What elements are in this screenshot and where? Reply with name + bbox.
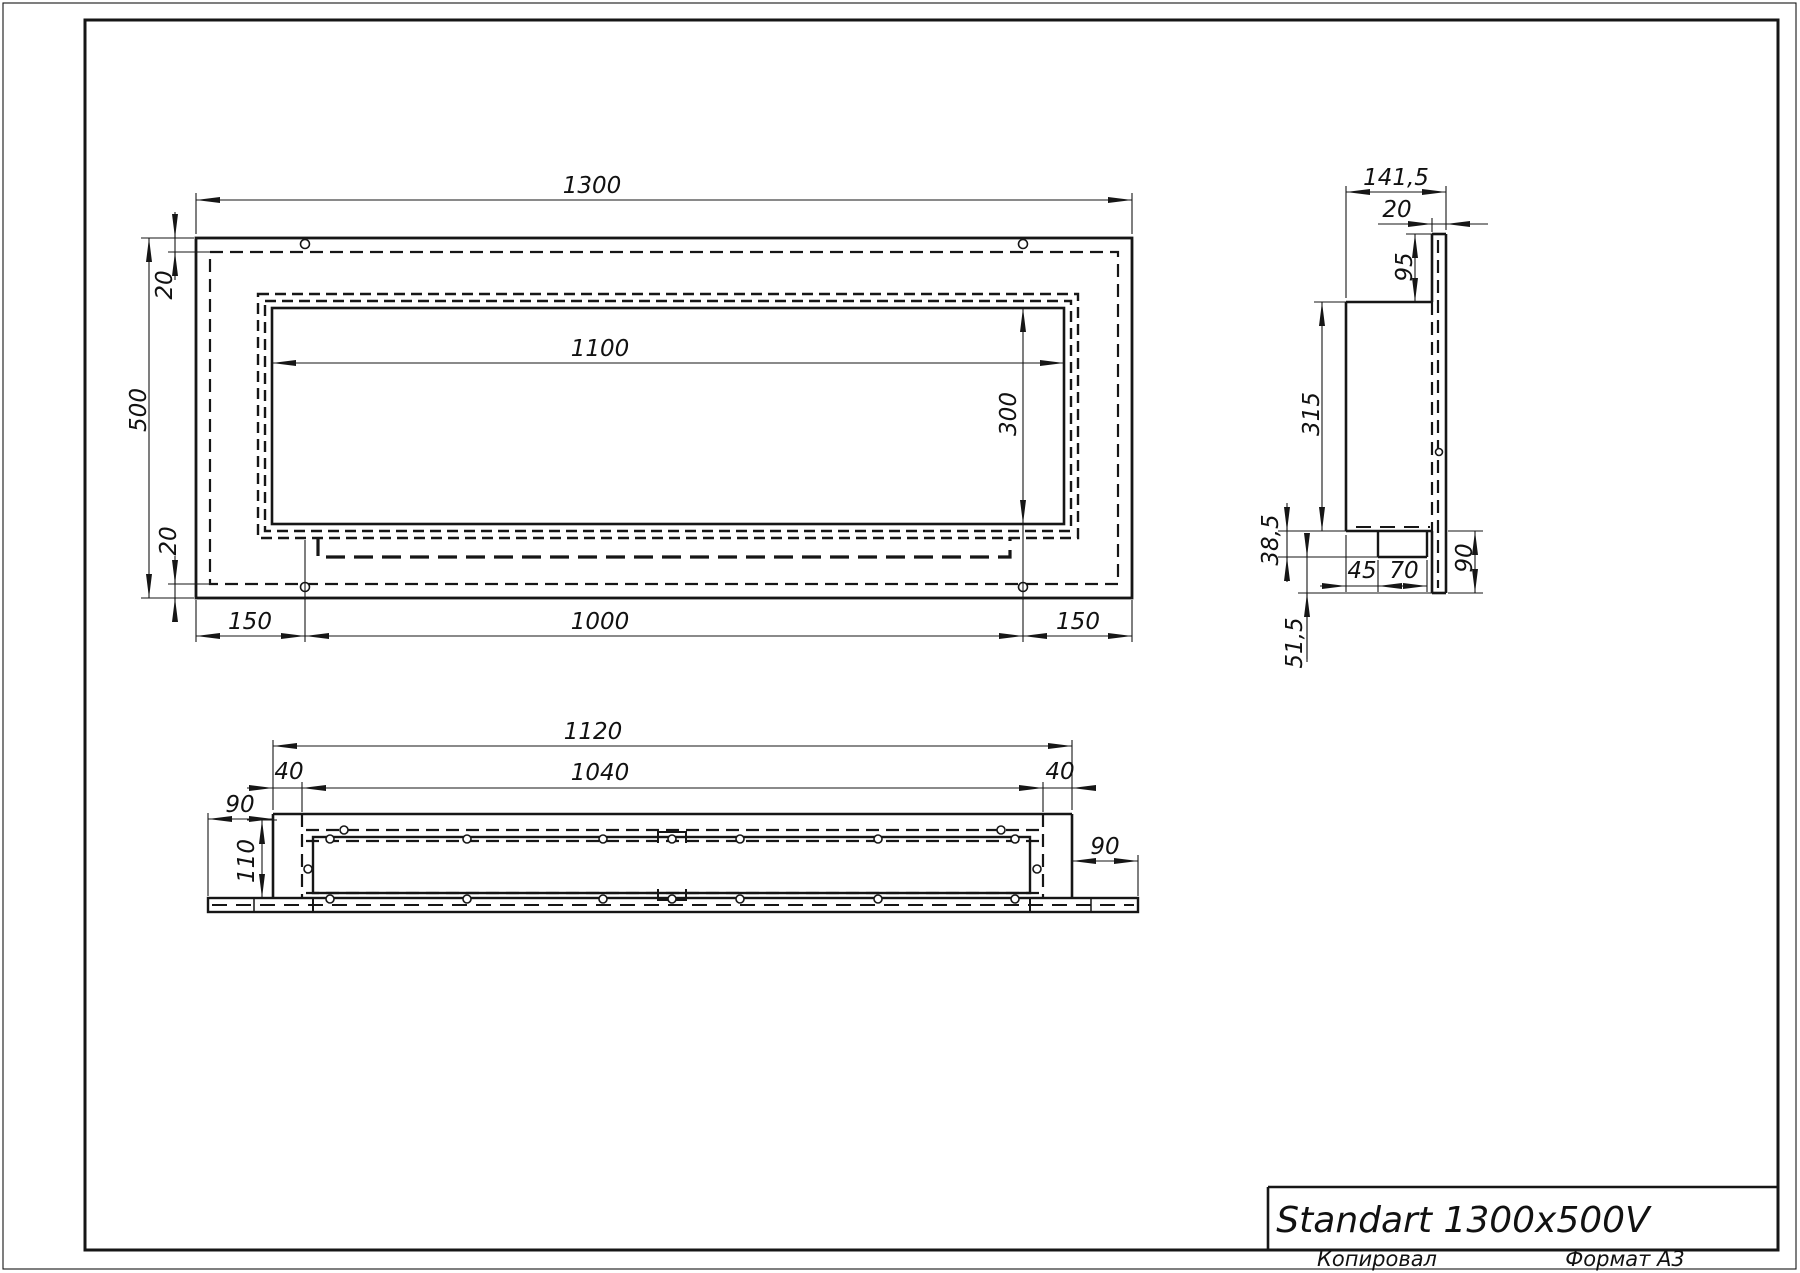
side-dim-bottom-overhang: 90 <box>1452 543 1478 572</box>
plan-dim-depth: 110 <box>234 839 260 883</box>
side-outline <box>1346 234 1446 593</box>
front-dim-margin-right: 150 <box>1056 609 1100 635</box>
plan-view: 1120 1040 40 40 90 90 110 <box>208 719 1138 912</box>
drawing-sheet: 1300 500 20 20 1100 300 150 1000 150 <box>0 0 1800 1273</box>
plan-dim-inner-length: 1040 <box>571 760 630 786</box>
front-view: 1300 500 20 20 1100 300 150 1000 150 <box>126 173 1132 642</box>
front-dim-holes-span: 1000 <box>571 609 630 635</box>
front-dim-opening-width: 1100 <box>571 336 630 362</box>
plan-dimension-lines <box>208 740 1138 898</box>
side-dim-panel-thickness: 20 <box>1382 197 1411 223</box>
plan-dim-overhang-left: 90 <box>225 792 254 818</box>
front-dim-opening-height: 300 <box>996 392 1022 436</box>
side-dim-top-offset: 95 <box>1392 252 1418 281</box>
copied-label: Копировал <box>1317 1247 1437 1271</box>
technical-drawing: 1300 500 20 20 1100 300 150 1000 150 <box>0 0 1800 1273</box>
side-dim-tray-width: 70 <box>1389 558 1418 584</box>
side-view: 141,5 20 95 315 38,5 51,5 45 70 90 <box>1258 165 1488 669</box>
front-outline <box>196 238 1132 598</box>
front-dim-total-width: 1300 <box>563 173 622 199</box>
side-dim-body-height: 315 <box>1299 392 1325 436</box>
front-dim-total-height: 500 <box>126 388 152 432</box>
plan-dim-inset-right: 40 <box>1045 759 1074 785</box>
plan-dim-overhang-right: 90 <box>1090 834 1119 860</box>
front-mounting-holes <box>301 240 1028 592</box>
title-block: Standart 1300x500V Копировал Формат A3 <box>1268 1187 1778 1271</box>
front-dim-inset-top: 20 <box>152 270 178 299</box>
plan-dim-box-length: 1120 <box>564 719 623 745</box>
front-dimension-lines <box>141 193 1132 642</box>
side-dim-below-tray: 51,5 <box>1282 617 1308 668</box>
front-dim-inset-bottom: 20 <box>156 526 182 555</box>
drawing-title: Standart 1300x500V <box>1276 1200 1652 1241</box>
format-label: Формат A3 <box>1565 1247 1685 1271</box>
side-dim-tray-drop: 38,5 <box>1258 514 1284 565</box>
side-dim-total-depth: 141,5 <box>1363 165 1429 191</box>
side-dim-tray-inset: 45 <box>1347 558 1376 584</box>
plan-dim-inset-left: 40 <box>274 759 303 785</box>
front-dim-margin-left: 150 <box>228 609 272 635</box>
